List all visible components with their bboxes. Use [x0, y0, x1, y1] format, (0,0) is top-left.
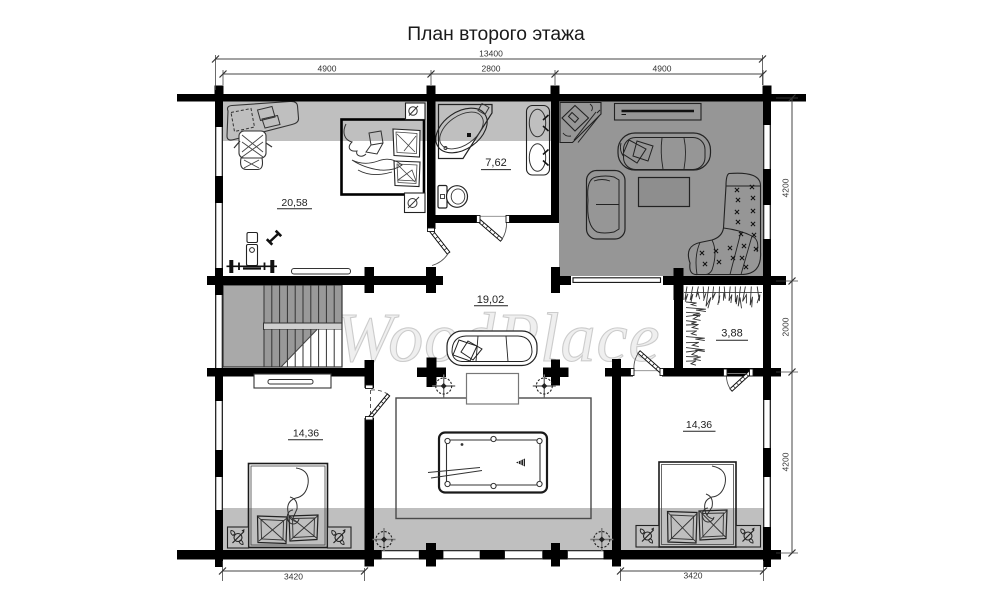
svg-text:2000: 2000: [781, 317, 791, 336]
svg-text:4900: 4900: [653, 64, 672, 74]
svg-text:7,62: 7,62: [485, 157, 506, 169]
svg-text:План второго этажа: План второго этажа: [407, 24, 585, 45]
svg-text:20,58: 20,58: [281, 197, 307, 209]
svg-text:19,02: 19,02: [477, 294, 505, 306]
svg-text:4900: 4900: [318, 64, 337, 74]
svg-text:14,36: 14,36: [293, 428, 319, 440]
svg-text:3420: 3420: [684, 571, 703, 581]
svg-text:3420: 3420: [284, 572, 303, 582]
svg-text:14,36: 14,36: [686, 419, 712, 431]
svg-text:13400: 13400: [479, 49, 503, 59]
svg-text:4200: 4200: [781, 178, 791, 197]
svg-text:4200: 4200: [781, 452, 791, 471]
svg-text:2800: 2800: [482, 64, 501, 74]
svg-text:3,88: 3,88: [721, 328, 742, 340]
